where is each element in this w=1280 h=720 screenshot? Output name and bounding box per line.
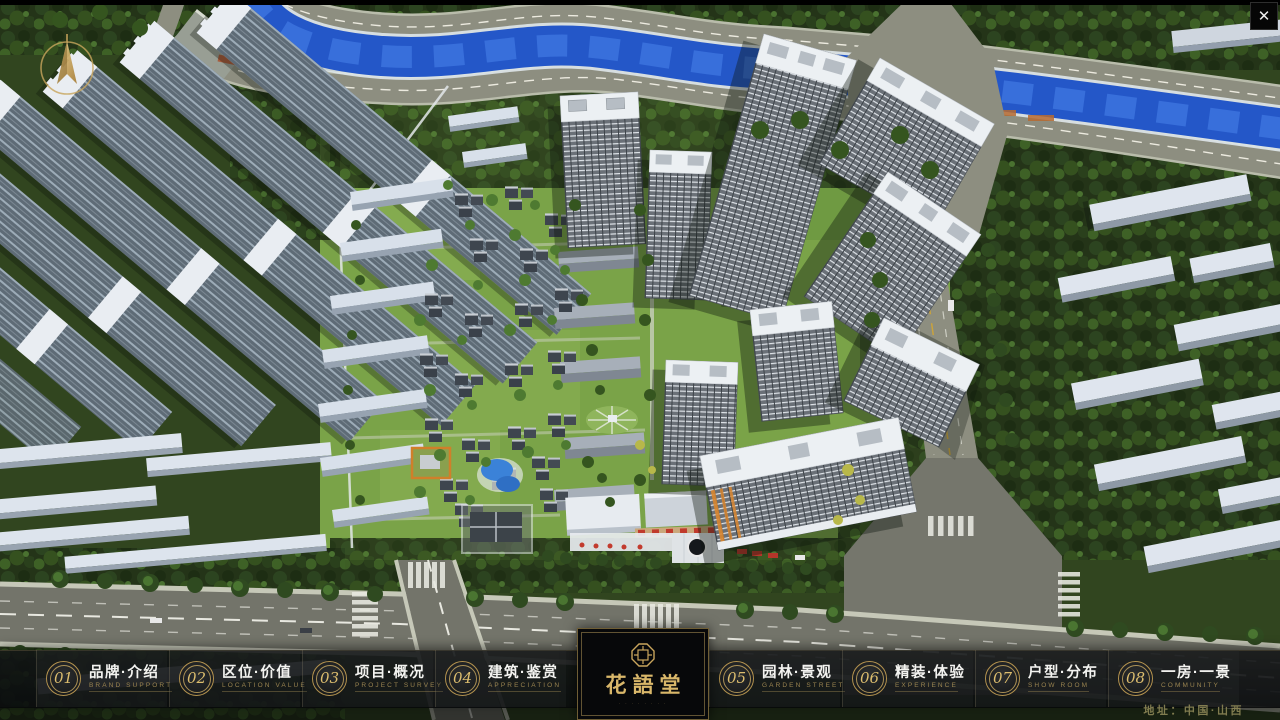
masterplan-render[interactable]: [0, 0, 1280, 720]
nav-title: 项目·概况: [355, 666, 443, 681]
close-button[interactable]: ✕: [1250, 2, 1278, 30]
nav-title: 建筑·鉴赏: [488, 666, 561, 681]
nav-item-community[interactable]: 08 一房·一景 COMMUNITY: [1108, 650, 1239, 707]
nav-item-brand[interactable]: 01 品牌·介绍 BRAND SUPPORT: [36, 650, 167, 707]
nav-title: 精装·体验: [895, 666, 965, 681]
compass-north-icon: [36, 32, 98, 98]
nav-number-badge: 01: [46, 661, 81, 696]
nav-title: 一房·一景: [1161, 666, 1231, 681]
nav-subtitle: APPRECIATION: [488, 683, 561, 692]
nav-subtitle: COMMUNITY: [1161, 683, 1220, 692]
nav-item-architecture[interactable]: 04 建筑·鉴赏 APPRECIATION: [435, 650, 566, 707]
nav-item-interior[interactable]: 06 精装·体验 EXPERIENCE: [842, 650, 973, 707]
nav-subtitle: PROJECT SURVEY: [355, 683, 443, 692]
nav-title: 区位·价值: [222, 666, 307, 681]
nav-subtitle: SHOW ROOM: [1028, 683, 1089, 692]
nav-subtitle: EXPERIENCE: [895, 683, 958, 692]
project-logo[interactable]: 花語堂 · · · · · · · ·: [577, 628, 709, 720]
nav-title: 品牌·介绍: [89, 666, 172, 681]
nav-number-badge: 05: [719, 661, 754, 696]
nav-item-location[interactable]: 02 区位·价值 LOCATION VALUE: [169, 650, 300, 707]
nav-number-badge: 03: [312, 661, 347, 696]
nav-number-badge: 02: [179, 661, 214, 696]
close-icon: ✕: [1258, 9, 1271, 24]
nav-item-project[interactable]: 03 项目·概况 PROJECT SURVEY: [302, 650, 433, 707]
nav-title: 园林·景观: [762, 666, 845, 681]
pavilion-courtyard: [462, 505, 532, 553]
nav-item-floorplan[interactable]: 07 户型·分布 SHOW ROOM: [975, 650, 1106, 707]
nav-number-badge: 08: [1118, 661, 1153, 696]
project-name: 花語堂: [600, 669, 687, 699]
nav-number-badge: 04: [445, 661, 480, 696]
nav-item-garden[interactable]: 05 园林·景观 GARDEN STREET: [709, 650, 840, 707]
sales-presentation-window: ✕ 01 品牌·介绍 BRAND SUPPORT 02 区位·价值 LOCATI…: [0, 0, 1280, 720]
seal-icon: [631, 643, 655, 667]
top-letterbox-strip: [0, 0, 1280, 5]
nav-number-badge: 06: [852, 661, 887, 696]
nav-title: 户型·分布: [1028, 666, 1098, 681]
project-address: 地址：中国·山西: [1143, 702, 1244, 718]
project-name-caption: · · · · · · · ·: [619, 701, 667, 706]
nav-subtitle: GARDEN STREET: [762, 683, 845, 692]
central-garden: [586, 406, 638, 434]
nav-subtitle: LOCATION VALUE: [222, 683, 307, 692]
nav-number-badge: 07: [985, 661, 1020, 696]
nav-subtitle: BRAND SUPPORT: [89, 683, 172, 692]
